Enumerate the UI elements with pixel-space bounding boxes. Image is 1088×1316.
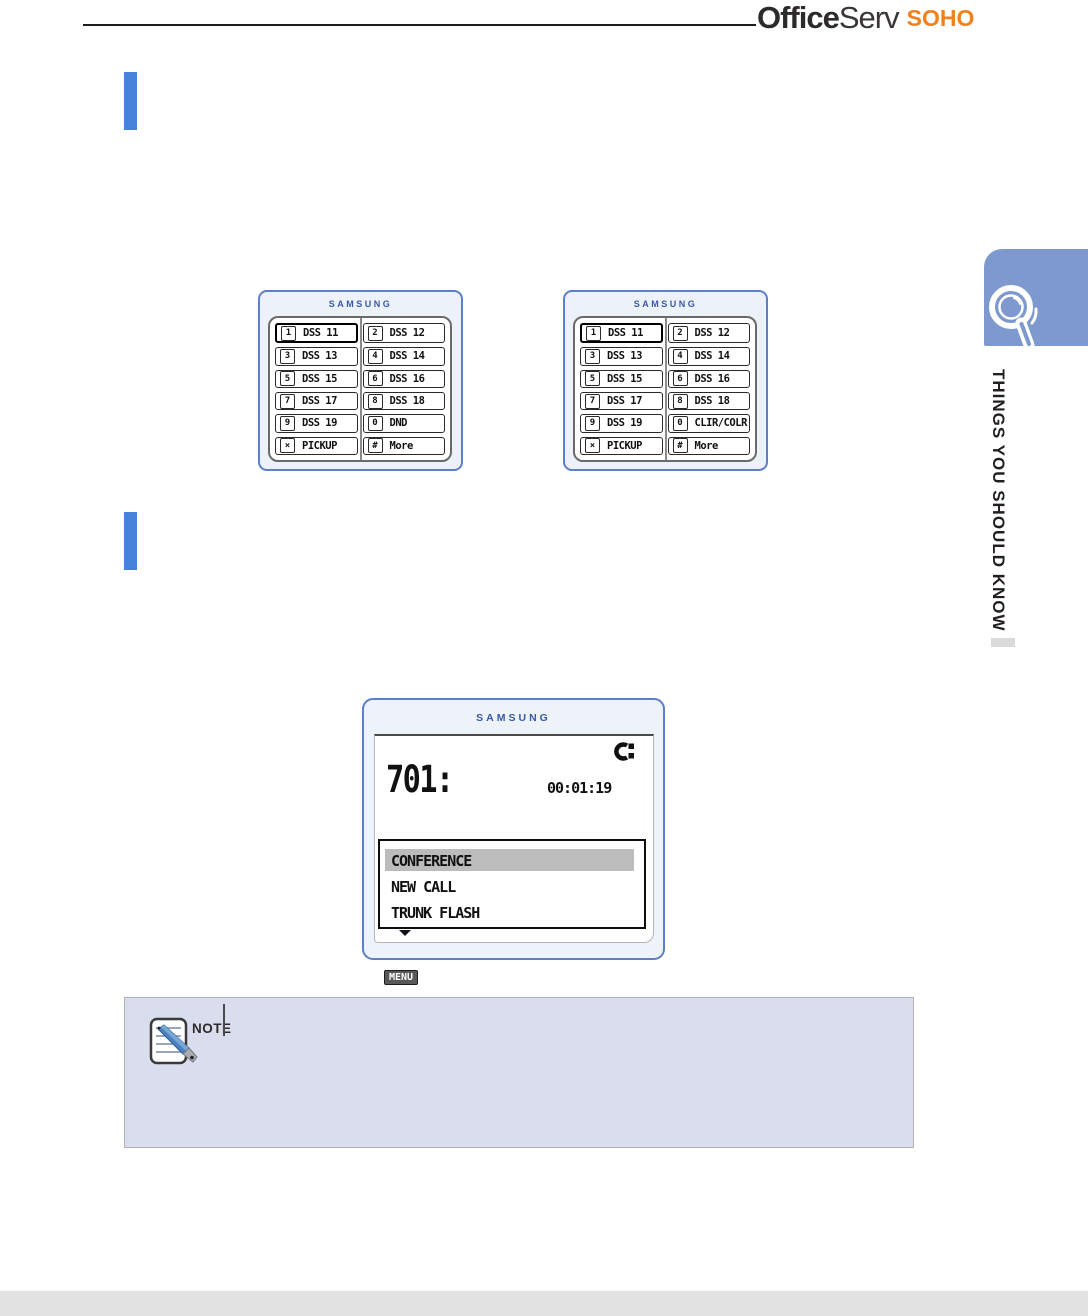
- samsung-brand-label: SAMSUNG: [260, 299, 461, 309]
- dss-key-label: CLIR/COLR: [695, 417, 747, 429]
- samsung-brand-label: SAMSUNG: [364, 712, 663, 724]
- dss-key-button: 0 CLIR/COLR: [668, 414, 751, 432]
- dss-key-label: DSS 15: [607, 373, 642, 385]
- lcd-menu-item: TRUNK FLASH: [380, 900, 644, 926]
- dss-key-label: DSS 16: [390, 373, 425, 385]
- section-heading-bar-2: [124, 512, 137, 570]
- dss-key-button: 2 DSS 12: [363, 323, 446, 343]
- chapter-tab: [984, 249, 1088, 346]
- dss-key-digit: 4: [368, 349, 383, 364]
- station-number: 701:: [386, 758, 453, 801]
- dss-key-digit: 2: [368, 326, 383, 341]
- logo-soho-text: SOHO: [907, 5, 975, 32]
- lcd-screen: 701: 00:01:19 CONFERENCE NEW CALL TRUNK …: [374, 734, 654, 943]
- dss-key-label: DSS 18: [695, 395, 730, 407]
- dss-key-label: DSS 19: [302, 417, 337, 429]
- dss-key-button: # More: [363, 437, 446, 455]
- dss-key-panel-1: SAMSUNG 1 DSS 11 2 DSS 12 3 DSS 13 4 DSS…: [258, 290, 463, 471]
- dss-key-button: # More: [668, 437, 751, 455]
- dss-key-button: 3 DSS 13: [580, 347, 663, 365]
- dss-key-label: PICKUP: [302, 440, 337, 452]
- dss-key-button: × PICKUP: [580, 437, 663, 455]
- dss-key-digit: 2: [673, 326, 688, 341]
- dss-key-button: 6 DSS 16: [668, 370, 751, 388]
- dss-key-button: 6 DSS 16: [363, 370, 446, 388]
- note-divider: [223, 1004, 225, 1036]
- dss-key-button: 9 DSS 19: [275, 414, 358, 432]
- dss-key-button: 9 DSS 19: [580, 414, 663, 432]
- dss-key-digit: 9: [280, 416, 295, 431]
- dss-key-label: DSS 13: [302, 350, 337, 362]
- menu-pointer-arrow: [399, 930, 411, 936]
- dss-key-digit: 3: [280, 349, 295, 364]
- dss-keypad: 1 DSS 11 2 DSS 12 3 DSS 13 4 DSS 14 5 DS…: [268, 316, 452, 462]
- dss-key-digit: 4: [673, 349, 688, 364]
- dss-key-label: DSS 17: [607, 395, 642, 407]
- logo-serv-text: Serv: [839, 0, 899, 36]
- dss-keypad: 1 DSS 11 2 DSS 12 3 DSS 13 4 DSS 14 5 DS…: [573, 316, 757, 462]
- phone-display-panel: SAMSUNG 701: 00:01:19 CONFERENCE NEW CAL…: [362, 698, 665, 960]
- dss-key-digit: 8: [673, 394, 688, 409]
- logo-office-text: Office: [757, 0, 839, 36]
- dss-key-digit: 5: [280, 371, 295, 386]
- dss-key-button: 5 DSS 15: [275, 370, 358, 388]
- dss-key-digit: #: [368, 438, 383, 453]
- page-tab-chip: [991, 638, 1015, 647]
- dss-key-digit: 3: [585, 349, 600, 364]
- dss-key-label: DSS 14: [390, 350, 425, 362]
- dss-key-button: 4 DSS 14: [363, 347, 446, 365]
- lcd-menu-item: NEW CALL: [380, 874, 644, 900]
- dss-key-digit: 7: [585, 394, 600, 409]
- dss-key-button: 5 DSS 15: [580, 370, 663, 388]
- dss-key-label: DSS 16: [695, 373, 730, 385]
- manual-page: OfficeServSOHO SAMSUNG 1 DSS 11 2 DSS 12…: [0, 0, 1088, 1316]
- dss-key-digit: 1: [281, 326, 296, 341]
- dss-key-digit: 6: [673, 371, 688, 386]
- magnifier-icon: [984, 283, 1050, 349]
- dss-key-button: 3 DSS 13: [275, 347, 358, 365]
- dss-key-label: DSS 15: [302, 373, 337, 385]
- lcd-menu-item: CONFERENCE: [380, 848, 644, 874]
- dss-key-digit: ×: [280, 438, 295, 453]
- dss-key-button: 4 DSS 14: [668, 347, 751, 365]
- dss-key-label: DSS 11: [303, 327, 338, 339]
- dss-key-digit: 0: [673, 416, 688, 431]
- dss-key-button: 0 DND: [363, 414, 446, 432]
- dss-key-digit: #: [673, 438, 688, 453]
- dss-key-label: DSS 12: [695, 327, 730, 339]
- lcd-menu-item-label: CONFERENCE: [391, 852, 471, 870]
- samsung-brand-label: SAMSUNG: [565, 299, 766, 309]
- dss-key-label: DSS 12: [390, 327, 425, 339]
- footer-strip: [0, 1291, 1088, 1316]
- dss-key-label: DSS 11: [608, 327, 643, 339]
- dss-key-label: DSS 19: [607, 417, 642, 429]
- menu-softkey-tag: MENU: [384, 970, 418, 985]
- dss-key-label: DSS 17: [302, 395, 337, 407]
- call-timer: 00:01:19: [547, 779, 611, 797]
- dss-key-digit: 5: [585, 371, 600, 386]
- section-heading-bar-1: [124, 72, 137, 130]
- dss-key-button: 8 DSS 18: [363, 392, 446, 410]
- dss-key-panel-2: SAMSUNG 1 DSS 11 2 DSS 12 3 DSS 13 4 DSS…: [563, 290, 768, 471]
- officeserv-soho-logo: OfficeServSOHO: [757, 0, 974, 36]
- dss-key-label: More: [390, 440, 413, 452]
- dss-key-label: DSS 18: [390, 395, 425, 407]
- lcd-menu-item-label: TRUNK FLASH: [391, 904, 479, 922]
- lcd-menu-item-label: NEW CALL: [391, 878, 455, 896]
- dss-key-digit: 1: [586, 326, 601, 341]
- dss-key-button: 1 DSS 11: [580, 323, 663, 343]
- header-rule: [83, 24, 756, 26]
- dss-key-digit: 7: [280, 394, 295, 409]
- handset-in-use-icon: [611, 742, 637, 761]
- dss-key-label: DSS 13: [607, 350, 642, 362]
- dss-key-button: × PICKUP: [275, 437, 358, 455]
- dss-key-label: More: [695, 440, 718, 452]
- dss-key-digit: 0: [368, 416, 383, 431]
- dss-key-label: DND: [390, 417, 407, 429]
- dss-key-button: 2 DSS 12: [668, 323, 751, 343]
- dss-key-digit: 8: [368, 394, 383, 409]
- dss-key-button: 7 DSS 17: [580, 392, 663, 410]
- dss-key-digit: ×: [585, 438, 600, 453]
- lcd-menu-list: CONFERENCE NEW CALL TRUNK FLASH: [378, 839, 646, 929]
- chapter-title-vertical: THINGS YOU SHOULD KNOW: [988, 369, 1008, 637]
- note-label: NOTE: [192, 1021, 232, 1036]
- dss-key-label: PICKUP: [607, 440, 642, 452]
- dss-key-button: 1 DSS 11: [275, 323, 358, 343]
- dss-key-digit: 6: [368, 371, 383, 386]
- dss-key-button: 8 DSS 18: [668, 392, 751, 410]
- dss-key-label: DSS 14: [695, 350, 730, 362]
- note-box: NOTE: [124, 997, 914, 1148]
- dss-key-button: 7 DSS 17: [275, 392, 358, 410]
- dss-key-digit: 9: [585, 416, 600, 431]
